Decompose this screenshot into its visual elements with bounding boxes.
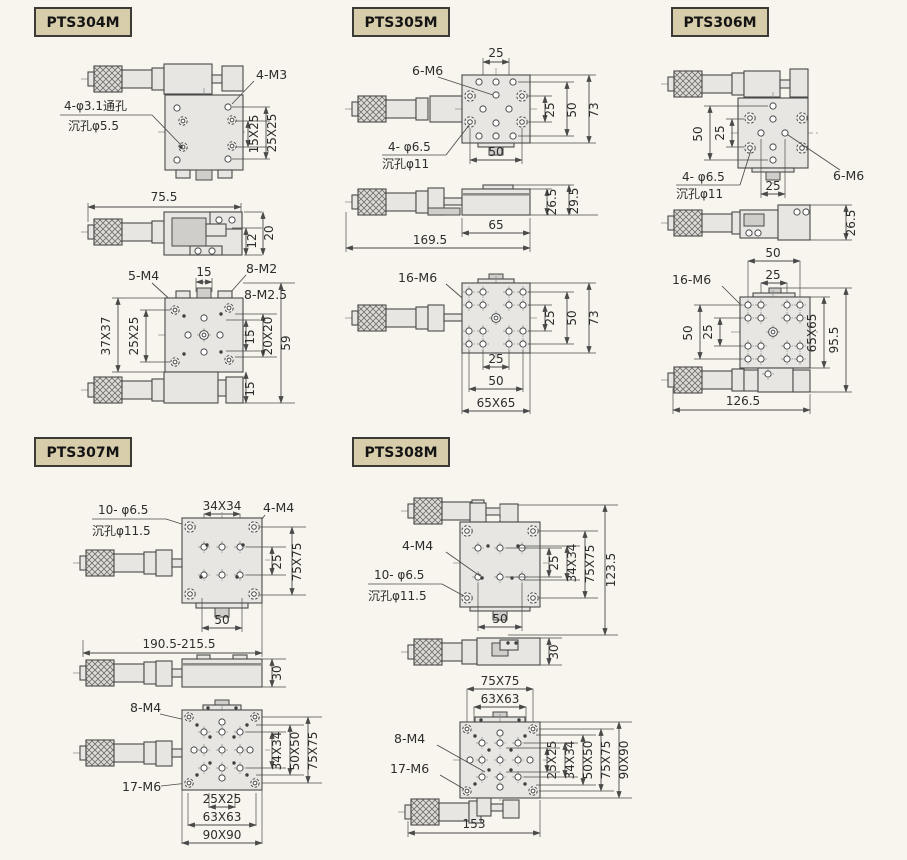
dim-50-top: 50	[765, 246, 780, 260]
callout-through-hole: 4- φ6.5	[682, 170, 725, 184]
dim-34x34-right-b: 34X34	[563, 741, 577, 780]
dim-190-5-215-5: 190.5-215.5	[142, 637, 215, 651]
micrometer-icon	[73, 660, 160, 686]
dim-59: 59	[279, 335, 293, 350]
dim-65x65: 65X65	[805, 314, 819, 353]
dim-50x50-right: 50X50	[581, 741, 595, 780]
pts304m-side-view: 75.5 12 20	[81, 190, 276, 255]
model-label-pts305m: PTS305M	[353, 8, 449, 36]
panel-pts307m: PTS307M 10- φ6.5 沉孔φ11.5 34X34 4-M4 25 7…	[35, 438, 322, 844]
callout-8-m2: 8-M2	[246, 261, 277, 276]
micrometer-icon	[81, 66, 168, 92]
dim-25-top2: 25	[765, 268, 780, 282]
panel-pts306m: PTS306M 50 25 4- φ6.5 沉孔φ11 6-M6 25	[661, 8, 864, 414]
dim-75-5: 75.5	[151, 190, 178, 204]
pts306m-top-view: 50 25 4- φ6.5 沉孔φ11 6-M6 25	[661, 69, 864, 201]
dim-25-right-b: 25	[543, 310, 557, 325]
dim-50-right-b: 50	[565, 310, 579, 325]
dim-50-bottom: 50	[488, 145, 503, 159]
callout-5-m4: 5-M4	[128, 268, 159, 283]
dim-29-5: 29.5	[567, 188, 581, 215]
callout-4-m3: 4-M3	[256, 67, 287, 82]
pts307m-bottom-view: 8-M4 17-M6 34X34 50X50 75X75 25X25	[73, 700, 322, 844]
dim-169-5: 169.5	[413, 233, 447, 247]
dim-20: 20	[262, 225, 276, 240]
callout-17-m6: 17-M6	[122, 779, 161, 794]
callout-counterbore: 沉孔φ5.5	[68, 119, 119, 133]
dim-50-left-b: 50	[681, 325, 695, 340]
pts305m-side-view: 26.5 29.5 65 169.5	[345, 185, 598, 252]
dim-25x25-right: 25X25	[545, 741, 559, 780]
dim-90x90-right: 90X90	[617, 741, 631, 780]
drawing-canvas: PTS304M 4-M3 4-φ3.1通孔 沉孔φ5.5 15X25 25X25…	[0, 0, 907, 860]
micrometer-icon	[661, 210, 748, 236]
callout-counterbore: 沉孔φ11.5	[92, 524, 151, 538]
dim-73-right: 73	[587, 102, 601, 117]
pts308m-bottom-view: 75X75 63X63 8-M4 17-M6 25X25 34X34	[390, 674, 632, 837]
model-label-pts306m: PTS306M	[672, 8, 768, 36]
model-label-text: PTS305M	[364, 15, 437, 31]
callout-counterbore: 沉孔φ11	[382, 157, 429, 171]
dim-75x75-right-b: 75X75	[306, 732, 320, 771]
dim-73-right-b: 73	[587, 310, 601, 325]
callout-counterbore: 沉孔φ11	[676, 187, 723, 201]
pts308m-top-view: 4-M4 10- φ6.5 沉孔φ11.5 25 34X34 75X75 123…	[368, 498, 618, 635]
dim-12: 12	[245, 233, 259, 248]
model-label-text: PTS306M	[683, 15, 756, 31]
callout-17-m6: 17-M6	[390, 761, 429, 776]
callout-16-m6: 16-M6	[672, 272, 711, 287]
model-label-pts308m: PTS308M	[353, 438, 449, 466]
dim-25-right: 25	[270, 554, 284, 569]
dim-50-bot: 50	[488, 374, 503, 388]
dim-25-top: 25	[488, 46, 503, 60]
callout-4-m4: 4-M4	[263, 500, 294, 515]
dim-90x90: 90X90	[203, 828, 242, 842]
micrometer-icon	[73, 550, 160, 576]
dim-25x25: 25X25	[203, 792, 242, 806]
dim-26-5: 26.5	[545, 189, 559, 216]
dim-34x34-right: 34X34	[565, 544, 579, 583]
dim-75x75-right: 75X75	[290, 543, 304, 582]
dim-153: 153	[463, 817, 486, 831]
model-label-text: PTS307M	[46, 445, 119, 461]
model-label-pts307m: PTS307M	[35, 438, 131, 466]
dim-63x63-top: 63X63	[481, 692, 520, 706]
dim-25-left-b: 25	[701, 324, 715, 339]
dim-95-5: 95.5	[827, 327, 841, 354]
dim-126-5: 126.5	[726, 394, 760, 408]
dim-25-left: 25	[713, 125, 727, 140]
dim-25x25: 25X25	[265, 114, 279, 153]
dim-75x75-top: 75X75	[481, 674, 520, 688]
panel-pts308m: PTS308M 4-M4 10- φ6.5 沉孔φ11.5 25 34X34 7…	[353, 438, 632, 837]
dim-15x25: 15X25	[247, 115, 261, 154]
dim-50x50-right: 50X50	[288, 732, 302, 771]
pts304m-top-view: 4-M3 4-φ3.1通孔 沉孔φ5.5 15X25 25X25	[60, 64, 287, 180]
pts307m-top-view: 10- φ6.5 沉孔φ11.5 34X34 4-M4 25 75X75 50 …	[73, 499, 306, 657]
callout-16-m6: 16-M6	[398, 270, 437, 285]
panel-pts304m: PTS304M 4-M3 4-φ3.1通孔 沉孔φ5.5 15X25 25X25…	[35, 8, 295, 403]
callout-6-m6: 6-M6	[833, 168, 864, 183]
micrometer-icon	[81, 377, 168, 403]
model-label-text: PTS308M	[364, 445, 437, 461]
dim-25-right: 25	[547, 555, 561, 570]
callout-6-m6: 6-M6	[412, 63, 443, 78]
pts306m-side-view: 26.5	[661, 205, 858, 240]
dim-34x34-right: 34X34	[270, 732, 284, 771]
callout-8-m4: 8-M4	[394, 731, 425, 746]
callout-through-hole: 4-φ3.1通孔	[64, 99, 127, 113]
panel-pts305m: PTS305M 25 6-M6 4- φ6.5 沉孔φ11 25 50 73	[345, 8, 601, 414]
callout-through-hole: 10- φ6.5	[98, 503, 148, 517]
stage-block	[460, 522, 540, 607]
dim-30: 30	[270, 665, 284, 680]
dim-123-5: 123.5	[604, 553, 618, 587]
dim-25-bottom: 25	[765, 179, 780, 193]
dim-50-left: 50	[691, 126, 705, 141]
dim-50-bottom: 50	[492, 612, 507, 626]
pts308m-side-view: 30	[401, 638, 562, 665]
micrometer-icon	[661, 367, 748, 393]
dim-75x75-right: 75X75	[583, 545, 597, 584]
dim-65x65: 65X65	[477, 396, 516, 410]
micrometer-icon	[661, 71, 748, 97]
dim-50-right: 50	[565, 102, 579, 117]
dim-30: 30	[547, 644, 561, 659]
dim-34x34-top: 34X34	[203, 499, 242, 513]
dim-20x20: 20X20	[261, 317, 275, 356]
callout-4-m4: 4-M4	[402, 538, 433, 553]
dim-75x75-right-b: 75X75	[599, 741, 613, 780]
callout-through-hole: 4- φ6.5	[388, 140, 431, 154]
callout-through-hole: 10- φ6.5	[374, 568, 424, 582]
dim-25-bot: 25	[488, 352, 503, 366]
model-label-pts304m: PTS304M	[35, 8, 131, 36]
dim-15-top: 15	[196, 265, 211, 279]
dim-63x63: 63X63	[203, 810, 242, 824]
dim-25x25-b: 25X25	[127, 317, 141, 356]
dim-15-bottom: 15	[243, 381, 257, 396]
dim-37x37: 37X37	[99, 317, 113, 356]
dim-26-5: 26.5	[844, 210, 858, 237]
micrometer-icon	[345, 96, 432, 122]
dim-15-right: 15	[243, 329, 257, 344]
callout-8-m4: 8-M4	[130, 700, 161, 715]
pts305m-bottom-view: 16-M6 25 50 73 25 50 65X65	[345, 270, 601, 414]
pts304m-bottom-view: 5-M4 15 8-M2 8-M2.5 37X37 25X25 15 20X20	[81, 261, 295, 403]
pts305m-top-view: 25 6-M6 4- φ6.5 沉孔φ11 25 50 73 50	[345, 46, 601, 171]
pts306m-bottom-view: 50 25 16-M6 50 25 65X65 95.5 126	[661, 246, 852, 414]
micrometer-icon	[345, 189, 432, 215]
micrometer-icon	[73, 740, 160, 766]
micrometer-icon	[345, 305, 432, 331]
pts307m-side-view: 30	[73, 655, 286, 687]
dim-25-right: 25	[543, 102, 557, 117]
micrometer-icon	[81, 219, 168, 245]
callout-counterbore: 沉孔φ11.5	[368, 589, 427, 603]
dim-65: 65	[488, 218, 503, 232]
model-label-text: PTS304M	[46, 15, 119, 31]
catalog-drawing-page: PTS304M 4-M3 4-φ3.1通孔 沉孔φ5.5 15X25 25X25…	[0, 0, 907, 860]
dim-50-bottom: 50	[214, 613, 229, 627]
